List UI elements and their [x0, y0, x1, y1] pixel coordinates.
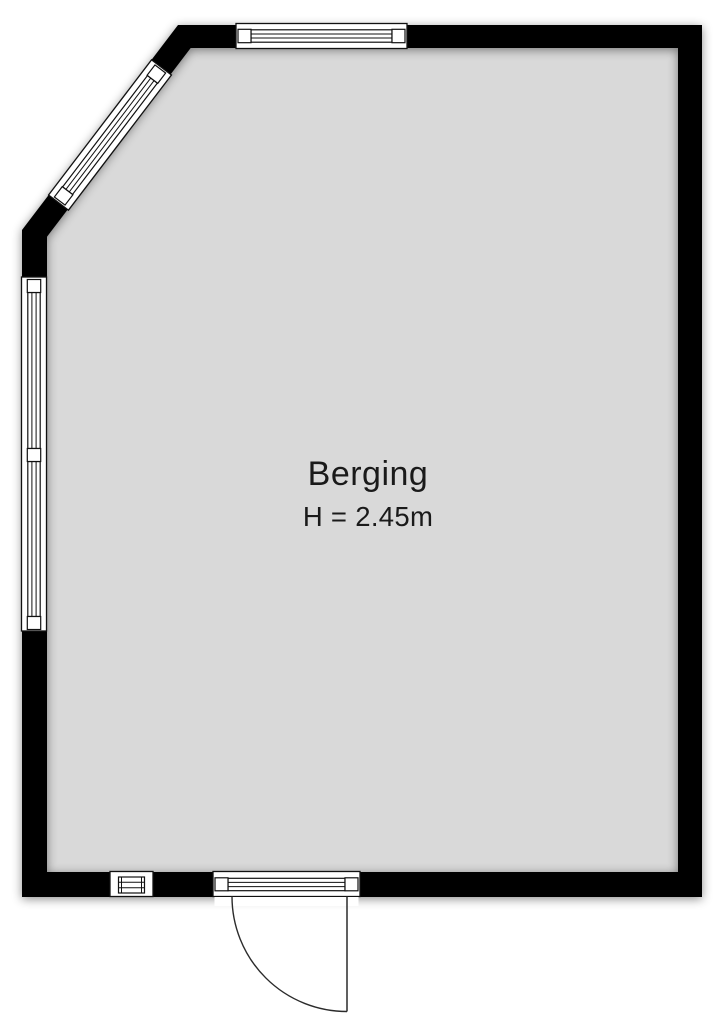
- entry-door: [213, 872, 360, 1012]
- door-swing-arc: [232, 897, 347, 1012]
- door-threshold: [215, 897, 359, 906]
- floorplan-page: Berging H = 2.45m: [0, 0, 724, 1024]
- floorplan-canvas: Berging H = 2.45m: [0, 0, 724, 1024]
- room-height-label: H = 2.45m: [303, 501, 433, 532]
- room-label: Berging: [308, 455, 429, 493]
- vent-window: [110, 872, 153, 897]
- left-window: [22, 277, 47, 631]
- top-window: [236, 24, 407, 49]
